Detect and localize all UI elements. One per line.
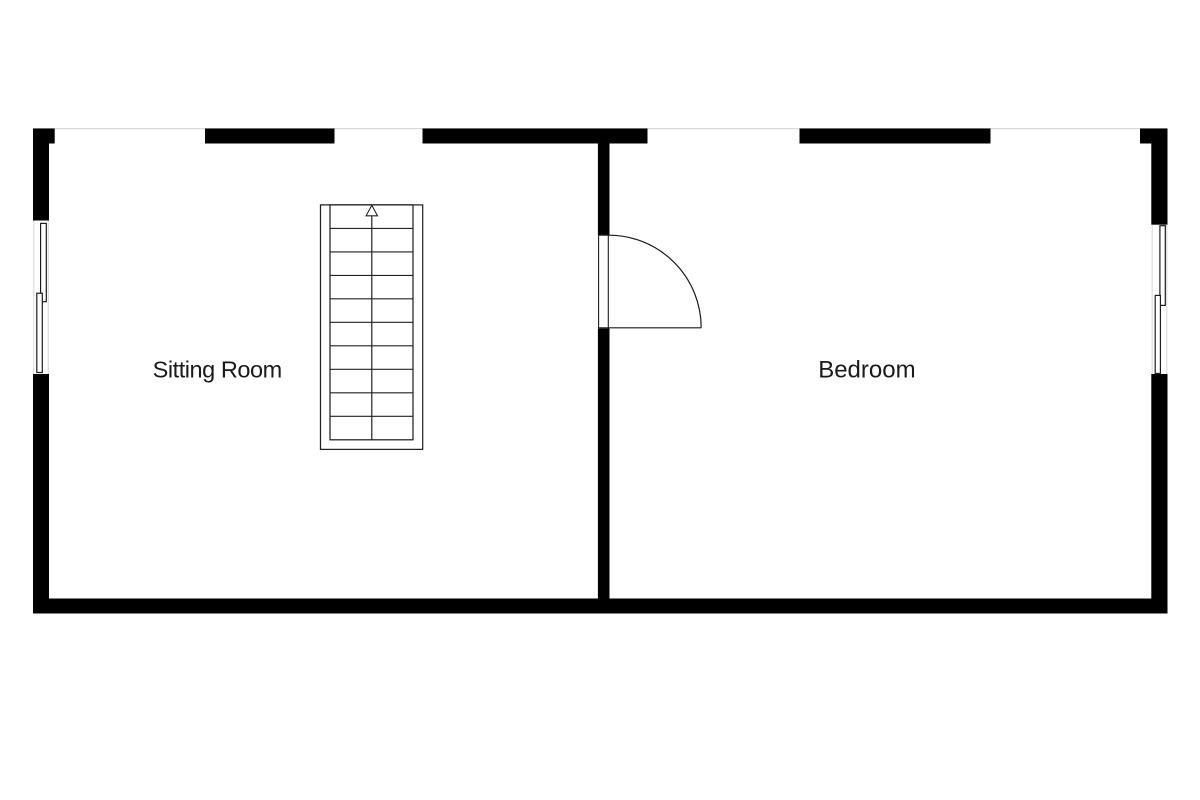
svg-text:Sitting Room: Sitting Room: [153, 356, 282, 382]
svg-text:Bedroom: Bedroom: [818, 357, 915, 384]
